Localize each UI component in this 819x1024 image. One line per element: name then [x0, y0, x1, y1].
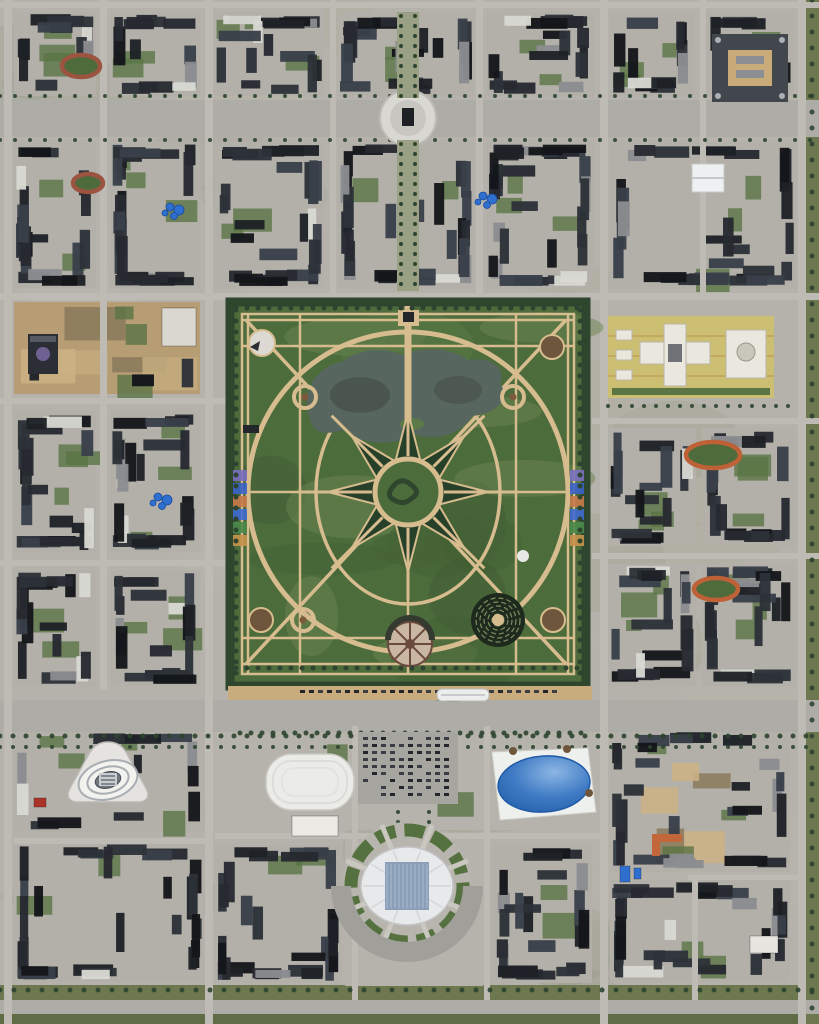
dark-dome-building: [28, 334, 58, 374]
courtyard-building: [712, 34, 788, 102]
blue-panel: [620, 866, 630, 882]
white-building: [162, 308, 196, 346]
satellite-image-canvas: [0, 0, 819, 1024]
running-track: [62, 55, 100, 77]
running-track: [73, 174, 103, 192]
white-dome-hall: [266, 754, 354, 810]
city-block: [608, 428, 696, 546]
exhibition-hall: [292, 816, 338, 836]
white-train: [437, 689, 489, 701]
city-block: [492, 845, 592, 983]
city-block: [610, 728, 790, 872]
city-block: [214, 142, 324, 288]
city-block: [14, 570, 96, 686]
north-axis-strip: [397, 12, 419, 98]
blue-panel: [634, 868, 641, 879]
city-block: [110, 410, 200, 552]
running-track: [686, 442, 740, 468]
city-block: [215, 845, 341, 983]
central-park: [228, 300, 603, 702]
red-roof-building: [34, 798, 46, 807]
city-block: [110, 570, 202, 686]
city-block: [486, 142, 594, 288]
city-block: [214, 12, 324, 96]
satellite-photo: [0, 0, 819, 1024]
city-block: [610, 880, 790, 982]
white-hall: [692, 164, 724, 192]
parking-lot: [358, 732, 458, 804]
city-block: [110, 12, 200, 96]
plaza-axis-strip: [397, 140, 419, 291]
city-block: [14, 842, 204, 982]
city-block: [608, 564, 696, 686]
white-building: [750, 936, 778, 953]
government-campus: [608, 316, 774, 398]
city-block: [14, 410, 101, 552]
city-block: [110, 142, 200, 288]
roundabout-plaza: [380, 90, 436, 146]
city-block: [610, 12, 694, 96]
running-track: [694, 578, 738, 600]
city-block: [486, 12, 594, 96]
blue-dome-hall: [492, 745, 596, 820]
city-block: [14, 142, 96, 288]
